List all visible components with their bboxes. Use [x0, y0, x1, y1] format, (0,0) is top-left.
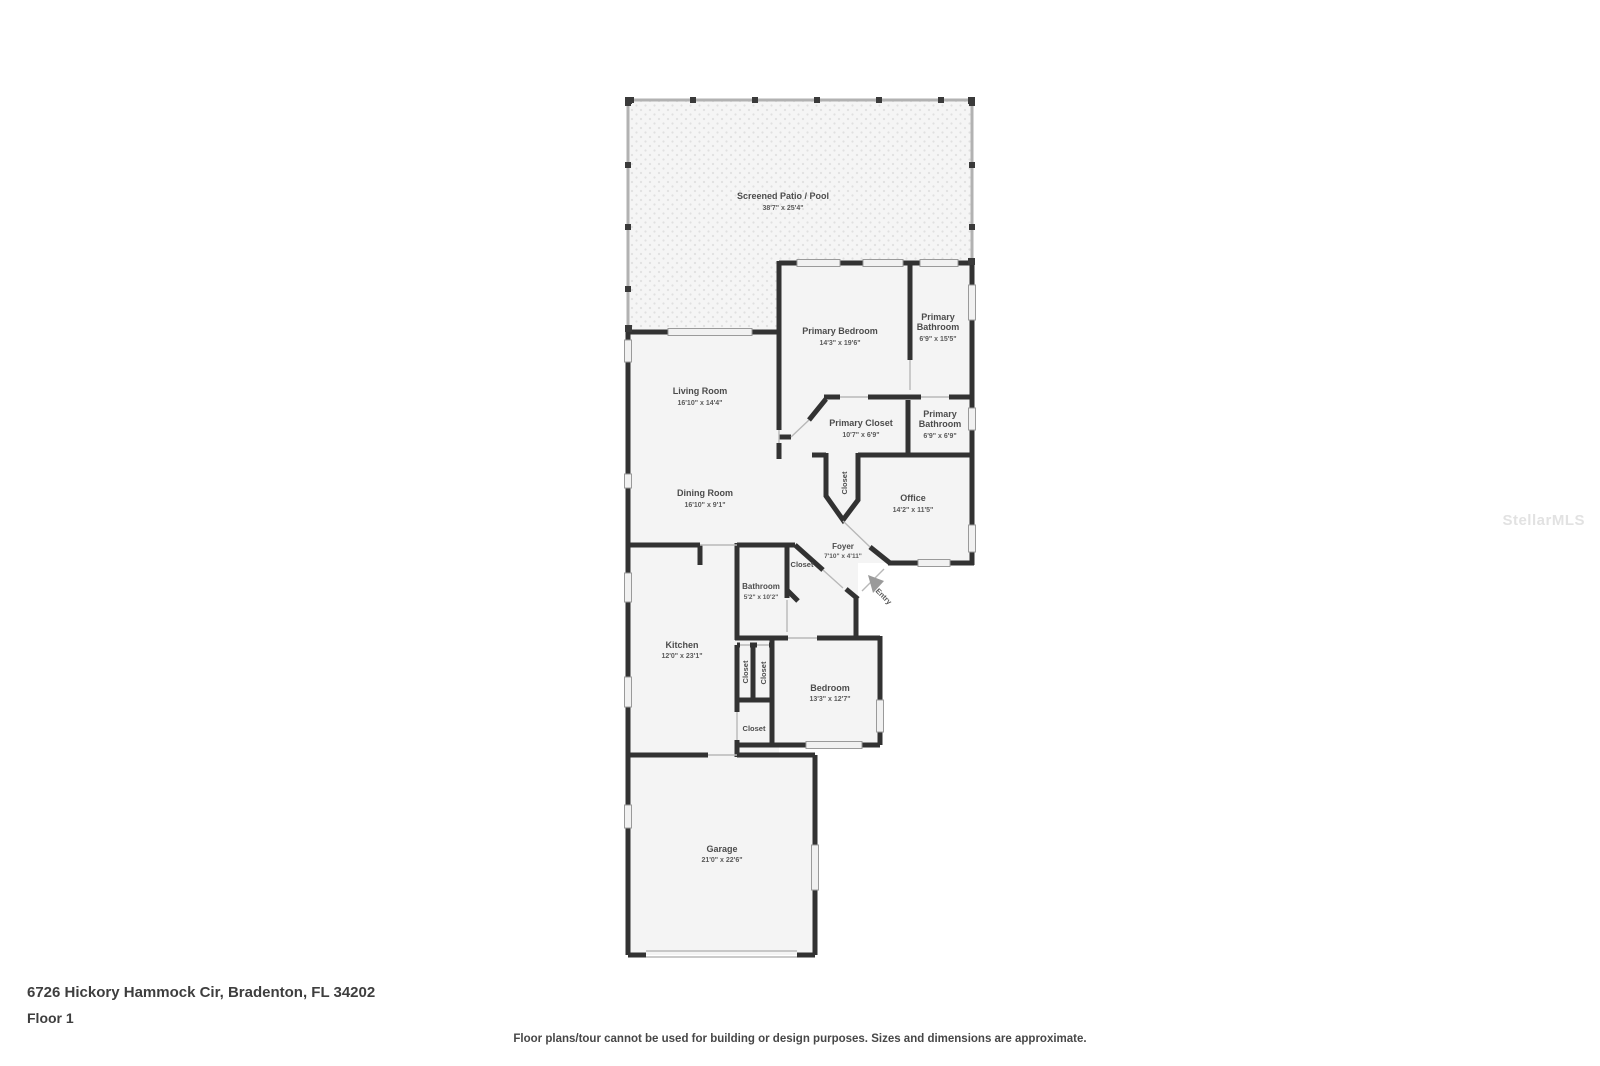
room-label-garage: Garage: [706, 844, 737, 854]
room-label-screened-patio: Screened Patio / Pool: [737, 191, 829, 201]
disclaimer-text: Floor plans/tour cannot be used for buil…: [0, 1033, 1600, 1045]
room-dims-dining-room: 16'10" x 9'1": [684, 502, 725, 509]
property-address: 6726 Hickory Hammock Cir, Bradenton, FL …: [27, 984, 375, 1001]
room-label-bathroom: Bathroom: [742, 582, 780, 591]
room-label-foyer: Foyer: [832, 542, 854, 551]
room-label-dining-room: Dining Room: [677, 488, 733, 498]
room-label-primary-bathroom-1-line1: Primary: [921, 312, 955, 322]
room-label-primary-bedroom: Primary Bedroom: [802, 326, 878, 336]
room-fills: [628, 263, 972, 955]
room-label-bedroom: Bedroom: [810, 683, 850, 693]
room-label-primary-bathroom-1-line2: Bathroom: [917, 322, 960, 332]
room-dims-foyer: 7'10" x 4'11": [824, 553, 862, 560]
entry-label: Entry: [874, 586, 895, 607]
room-dims-kitchen: 12'0" x 23'1": [661, 653, 702, 660]
floor-plan-drawing: Screened Patio / Pool 38'7" x 25'4" Livi…: [0, 0, 1600, 1066]
room-label-kitchen: Kitchen: [665, 640, 698, 650]
room-label-primary-bathroom-2-line2: Bathroom: [919, 419, 962, 429]
closet-label-right: Closet: [759, 661, 768, 684]
room-dims-bedroom: 13'3" x 12'7": [809, 696, 850, 703]
room-label-living-room: Living Room: [673, 386, 728, 396]
room-dims-primary-bathroom-2: 6'9" x 6'9": [923, 433, 956, 440]
room-dims-bathroom: 5'2" x 10'2": [744, 594, 779, 601]
room-dims-living-room: 16'10" x 14'4": [677, 400, 722, 407]
closet-label-bottom: Closet: [743, 724, 766, 733]
closet-label-left: Closet: [741, 660, 750, 683]
closet-label-hall: Closet: [840, 471, 849, 494]
room-dims-office: 14'2" x 11'5": [893, 507, 934, 514]
room-label-primary-bathroom-2-line1: Primary: [923, 409, 957, 419]
room-dims-screened-patio: 38'7" x 25'4": [762, 205, 803, 212]
room-label-office: Office: [900, 493, 926, 503]
floor-number-label: Floor 1: [27, 1010, 74, 1026]
room-dims-garage: 21'0" x 22'6": [701, 857, 742, 864]
room-dims-primary-closet: 10'7" x 6'9": [842, 432, 879, 439]
room-dims-primary-bathroom-1: 6'9" x 15'5": [919, 336, 956, 343]
room-label-primary-closet: Primary Closet: [829, 418, 893, 428]
floor-plan-page: Screened Patio / Pool 38'7" x 25'4" Livi…: [0, 0, 1600, 1066]
room-dims-primary-bedroom: 14'3" x 19'6": [819, 340, 860, 347]
closet-label-foyer: Closet: [791, 560, 814, 569]
stellar-mls-watermark: StellarMLS: [1502, 512, 1585, 529]
